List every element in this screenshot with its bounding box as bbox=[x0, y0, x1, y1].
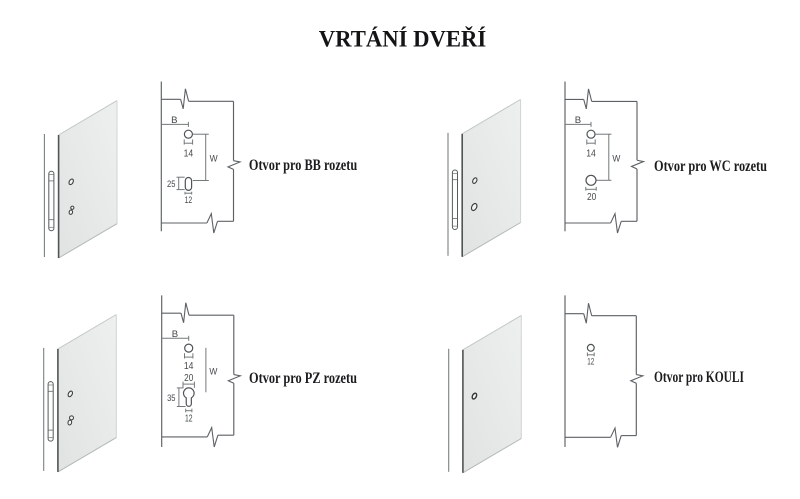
svg-text:B: B bbox=[171, 115, 177, 126]
svg-text:W: W bbox=[210, 153, 219, 164]
svg-text:VRTÁNÍ DVEŘÍ: VRTÁNÍ DVEŘÍ bbox=[319, 25, 487, 51]
svg-text:B: B bbox=[575, 115, 581, 126]
svg-text:25: 25 bbox=[167, 179, 175, 189]
svg-text:Otvor pro WC rozetu: Otvor pro WC rozetu bbox=[654, 157, 767, 175]
svg-text:B: B bbox=[172, 329, 178, 340]
svg-text:12: 12 bbox=[587, 357, 594, 368]
svg-text:W: W bbox=[209, 366, 218, 377]
svg-text:20: 20 bbox=[587, 192, 597, 203]
svg-text:W: W bbox=[612, 153, 621, 164]
svg-text:Otvor pro PZ rozetu: Otvor pro PZ rozetu bbox=[249, 369, 357, 387]
svg-text:20: 20 bbox=[184, 373, 193, 384]
svg-text:14: 14 bbox=[184, 361, 194, 372]
svg-text:12: 12 bbox=[185, 195, 193, 205]
svg-text:35: 35 bbox=[167, 392, 175, 403]
svg-text:Otvor pro KOULI: Otvor pro KOULI bbox=[654, 368, 744, 386]
svg-text:Otvor pro BB rozetu: Otvor pro BB rozetu bbox=[249, 156, 357, 174]
svg-text:14: 14 bbox=[184, 148, 194, 159]
svg-text:12: 12 bbox=[185, 413, 193, 424]
svg-text:14: 14 bbox=[586, 148, 596, 159]
